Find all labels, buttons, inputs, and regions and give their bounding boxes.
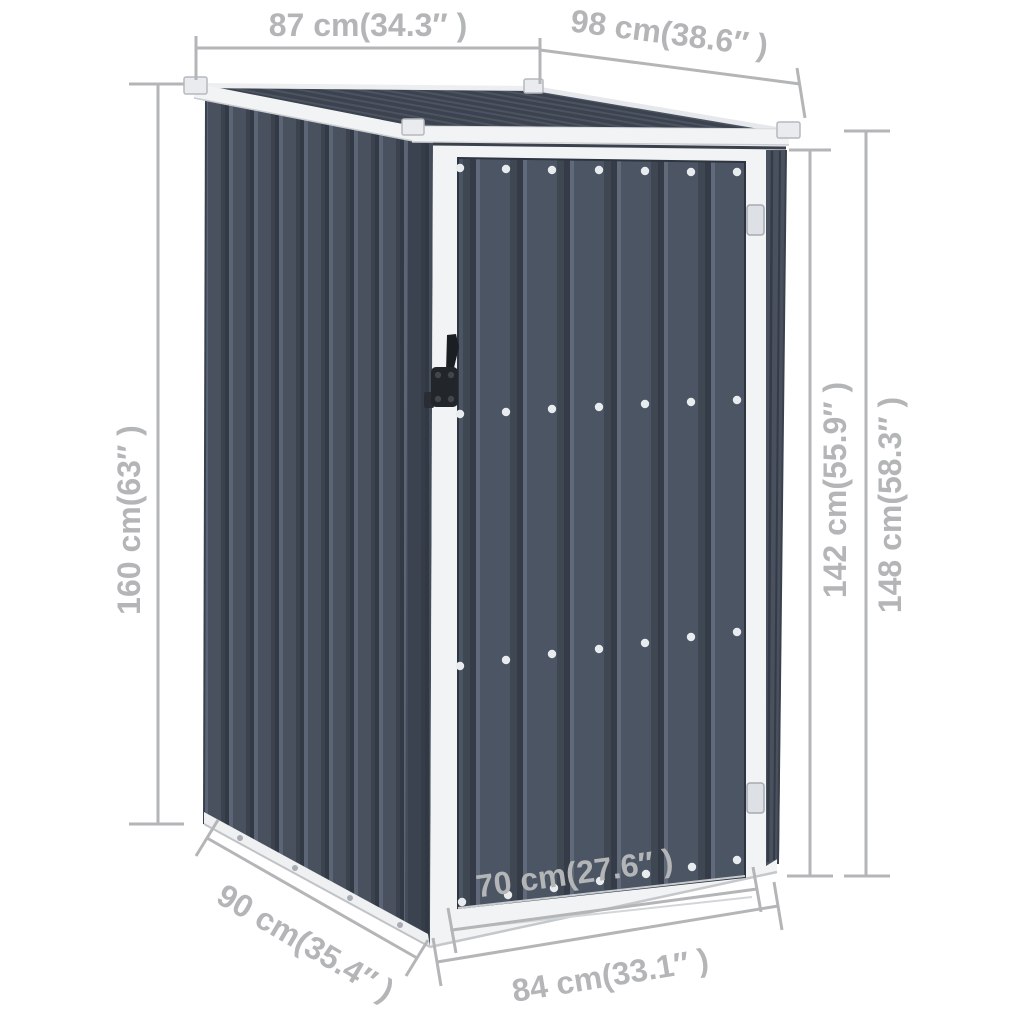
shed-left-wall bbox=[204, 97, 433, 947]
door-panel bbox=[458, 158, 745, 908]
shed-front-wall bbox=[424, 142, 786, 947]
dim-roof-depth: 87 cm(34.3″ ) bbox=[196, 7, 540, 84]
dim-label-roof-depth: 87 cm(34.3″ ) bbox=[269, 7, 468, 43]
dim-label-height-front-outer: 148 cm(58.3″ ) bbox=[872, 397, 908, 613]
product-diagram: 87 cm(34.3″ ) 98 cm(38.6″ ) 160 cm(63″ )… bbox=[0, 0, 1024, 1024]
shed-dimension-drawing: 87 cm(34.3″ ) 98 cm(38.6″ ) 160 cm(63″ )… bbox=[0, 0, 1024, 1024]
dim-height-front-outer: 148 cm(58.3″ ) bbox=[844, 131, 908, 876]
dim-label-roof-width: 98 cm(38.6″ ) bbox=[569, 2, 771, 63]
dim-label-base-width: 84 cm(33.1″ ) bbox=[509, 941, 711, 1009]
dim-label-height-front-inner: 142 cm(55.9″ ) bbox=[817, 382, 853, 598]
left-wall-corner-shadow bbox=[405, 136, 433, 947]
dim-height-back: 160 cm(63″ ) bbox=[111, 84, 184, 824]
shed-illustration bbox=[184, 77, 800, 947]
dim-label-height-back: 160 cm(63″ ) bbox=[111, 425, 147, 615]
dim-height-front-inner: 142 cm(55.9″ ) bbox=[787, 150, 853, 876]
